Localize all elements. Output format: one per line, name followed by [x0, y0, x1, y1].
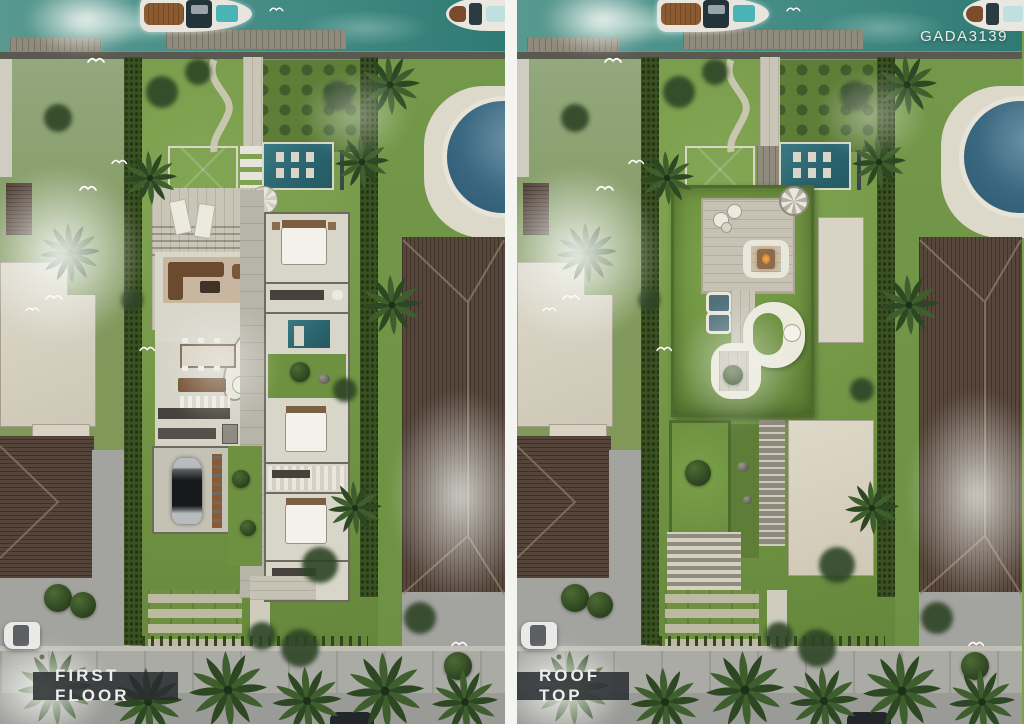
roof-top-label: ROOF TOP — [517, 672, 629, 700]
curved-parapet-stem — [711, 343, 761, 399]
wall — [264, 312, 350, 314]
pool-lounger — [294, 326, 304, 346]
inner-garden-bush — [232, 470, 250, 488]
sofa — [168, 262, 183, 300]
dining-chairs — [182, 366, 230, 371]
bed-headboard — [286, 498, 326, 505]
side-terrace — [818, 217, 864, 343]
panel-first-floor: FIRST FLOOR — [0, 0, 505, 724]
spiral-stair — [779, 186, 809, 216]
nightstand — [272, 222, 280, 230]
deck-side-table — [721, 222, 732, 233]
kitchen-counter — [158, 408, 230, 419]
courtyard-bush — [290, 362, 310, 382]
bath-vanity — [270, 290, 324, 300]
kitchen-counter — [158, 428, 216, 439]
loop-lawn-center — [753, 313, 783, 355]
dining-chairs — [182, 338, 230, 343]
coffee-table — [200, 281, 220, 293]
inner-garden-bush — [240, 520, 256, 536]
wall — [264, 492, 350, 494]
deck-round-chair — [727, 204, 742, 219]
wall — [264, 282, 350, 284]
pergola-louvers — [759, 420, 785, 546]
panel-roof-top: ROOF TOP — [517, 0, 1024, 724]
master-bed — [282, 228, 326, 264]
architectural-site-plan: FIRST FLOOR — [0, 0, 1024, 724]
first-floor-plan — [0, 0, 505, 724]
fire-flame — [762, 254, 770, 264]
first-floor-label: FIRST FLOOR — [33, 672, 178, 700]
garage-roof-tree — [685, 460, 711, 486]
stem-plant — [723, 365, 743, 385]
lower-roof-slab — [788, 420, 874, 576]
fridge — [222, 424, 238, 444]
bed-headboard — [286, 406, 326, 413]
inner-garden — [228, 446, 262, 566]
garage-shelving — [212, 454, 222, 528]
garden-rock — [737, 462, 749, 472]
bed-headboard — [282, 220, 326, 228]
garden-rock — [743, 496, 752, 504]
guest-bed — [286, 413, 326, 451]
kitchen-island — [178, 378, 226, 392]
first-floor-label-text: FIRST FLOOR — [55, 666, 178, 706]
wall — [264, 560, 350, 562]
loop-round-table — [783, 324, 801, 342]
garage — [152, 446, 230, 534]
wall — [264, 462, 350, 464]
bath-vanity — [272, 470, 310, 478]
louver-deck — [667, 532, 741, 590]
skylight — [706, 312, 732, 334]
guest-bed — [286, 505, 326, 543]
plunge-pool — [286, 318, 332, 350]
toilet — [332, 290, 343, 300]
dining-table — [180, 344, 236, 368]
watermark: GADA3139 — [920, 28, 1008, 45]
roof-top-label-text: ROOF TOP — [539, 666, 629, 706]
courtyard-rock — [318, 374, 330, 384]
garage-sports-car — [172, 458, 202, 524]
skylight — [706, 292, 732, 314]
entry-terrace — [250, 576, 316, 600]
fire-pit-table — [757, 249, 775, 269]
roof-top-plan — [517, 0, 1024, 724]
nightstand — [328, 222, 336, 230]
